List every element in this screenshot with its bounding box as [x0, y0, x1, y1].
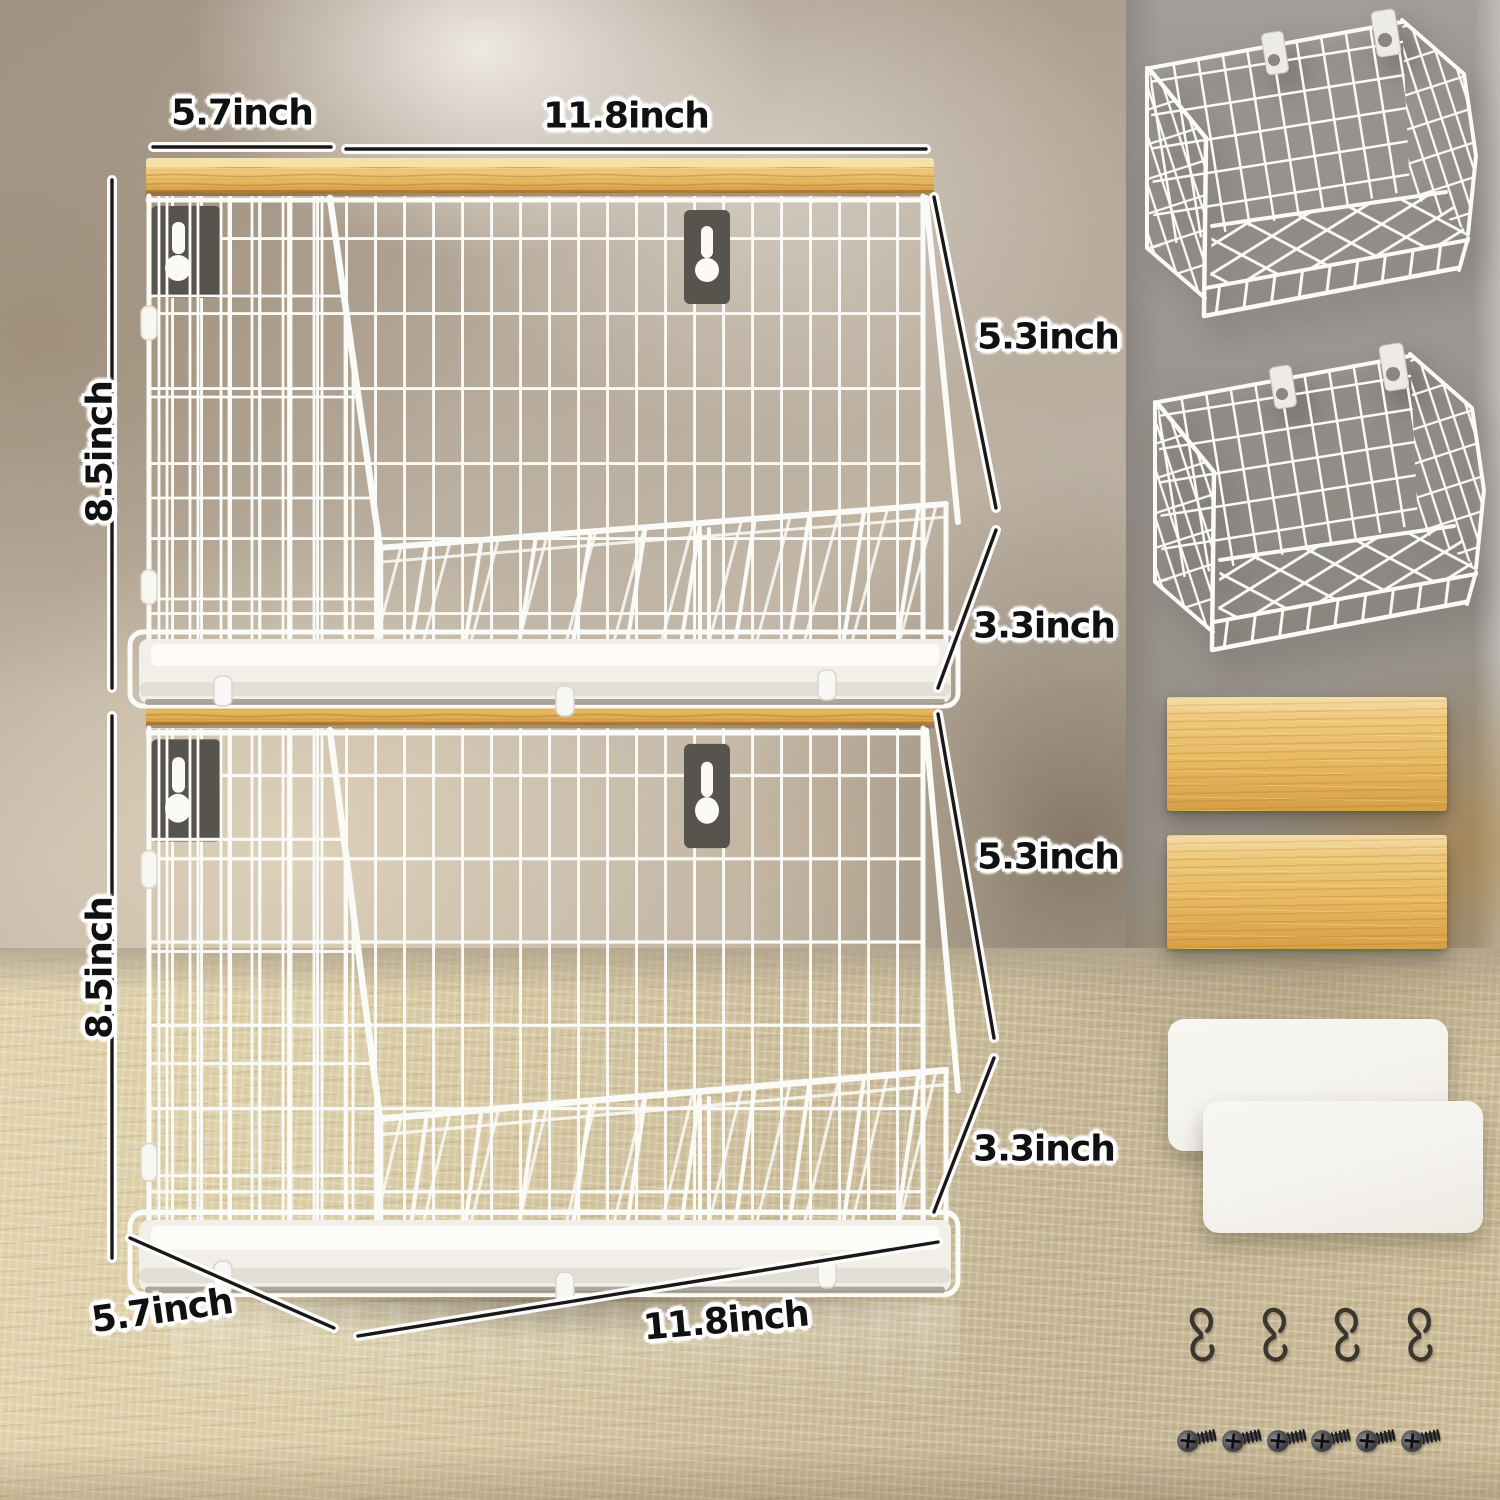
white-mat-icon	[1203, 1101, 1483, 1233]
dimension-label-lower-height: 8.5inch	[80, 897, 121, 1039]
screw-icon	[1400, 1422, 1444, 1456]
s-hook-icon	[1186, 1306, 1218, 1364]
screw-icon	[1355, 1422, 1399, 1456]
wood-board-icon	[1167, 697, 1447, 811]
dimension-label-lower-back: 5.3inch	[977, 837, 1119, 878]
dimension-label-upper-height: 8.5inch	[80, 381, 121, 523]
dimension-label-top-depth: 5.7inch	[171, 93, 313, 134]
product-dimension-image: 5.7inch 11.8inch 8.5inch 5.3inch 3.3inch…	[0, 0, 1500, 1500]
screws-group	[1176, 1420, 1444, 1458]
wire-basket-icon	[1146, 342, 1494, 668]
wood-board-icon	[1167, 835, 1447, 949]
included-parts-column	[0, 0, 1500, 1500]
wire-basket-icon	[1138, 8, 1486, 334]
dimension-label-top-width: 11.8inch	[543, 96, 709, 137]
dimension-label-upper-back: 5.3inch	[977, 317, 1119, 358]
s-hooks-group	[1186, 1304, 1436, 1366]
s-hook-icon	[1331, 1306, 1363, 1364]
screw-icon	[1176, 1422, 1220, 1456]
screw-icon	[1266, 1422, 1310, 1456]
s-hook-icon	[1404, 1306, 1436, 1364]
s-hook-icon	[1259, 1306, 1291, 1364]
screw-icon	[1310, 1422, 1354, 1456]
dimension-label-upper-front: 3.3inch	[973, 606, 1115, 647]
dimension-label-lower-front: 3.3inch	[973, 1129, 1115, 1170]
screw-icon	[1221, 1422, 1265, 1456]
